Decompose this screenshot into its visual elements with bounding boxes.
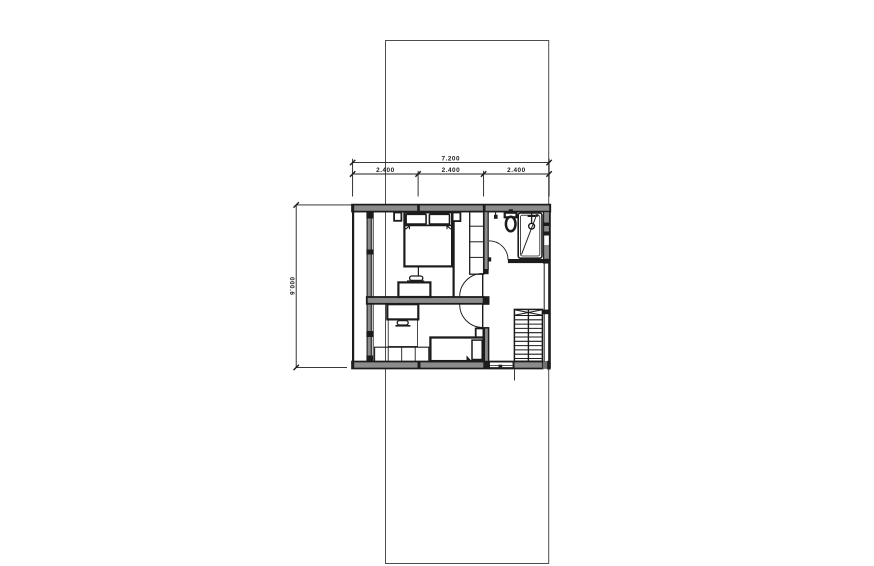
svg-text:2.400: 2.400	[507, 167, 526, 174]
svg-text:2.400: 2.400	[442, 167, 461, 174]
svg-text:2.400: 2.400	[376, 167, 395, 174]
svg-text:000.6: 000.6	[288, 277, 295, 296]
svg-text:7.200: 7.200	[442, 156, 461, 163]
